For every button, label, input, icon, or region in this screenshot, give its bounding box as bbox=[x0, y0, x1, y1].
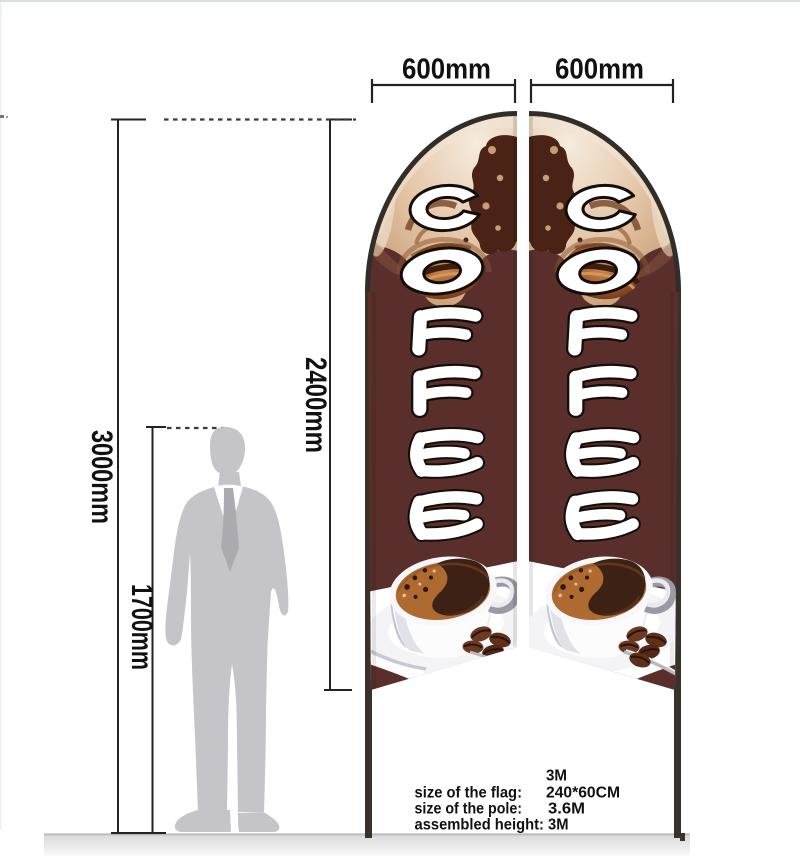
svg-text:600mm: 600mm bbox=[402, 54, 491, 86]
svg-text:size of the flag:: size of the flag: bbox=[415, 785, 523, 802]
svg-text:3M: 3M bbox=[546, 768, 567, 785]
svg-text:size of the pole:: size of the pole: bbox=[415, 801, 523, 818]
svg-text:assembled height: 3M: assembled height: 3M bbox=[415, 817, 569, 834]
svg-text:2400mm: 2400mm bbox=[299, 357, 332, 453]
svg-text:600mm: 600mm bbox=[555, 54, 644, 86]
svg-text:240*60CM: 240*60CM bbox=[546, 785, 620, 802]
svg-text:3000mm: 3000mm bbox=[85, 430, 118, 524]
svg-text:3.6M: 3.6M bbox=[548, 801, 585, 818]
svg-text:1700mm: 1700mm bbox=[125, 584, 158, 670]
